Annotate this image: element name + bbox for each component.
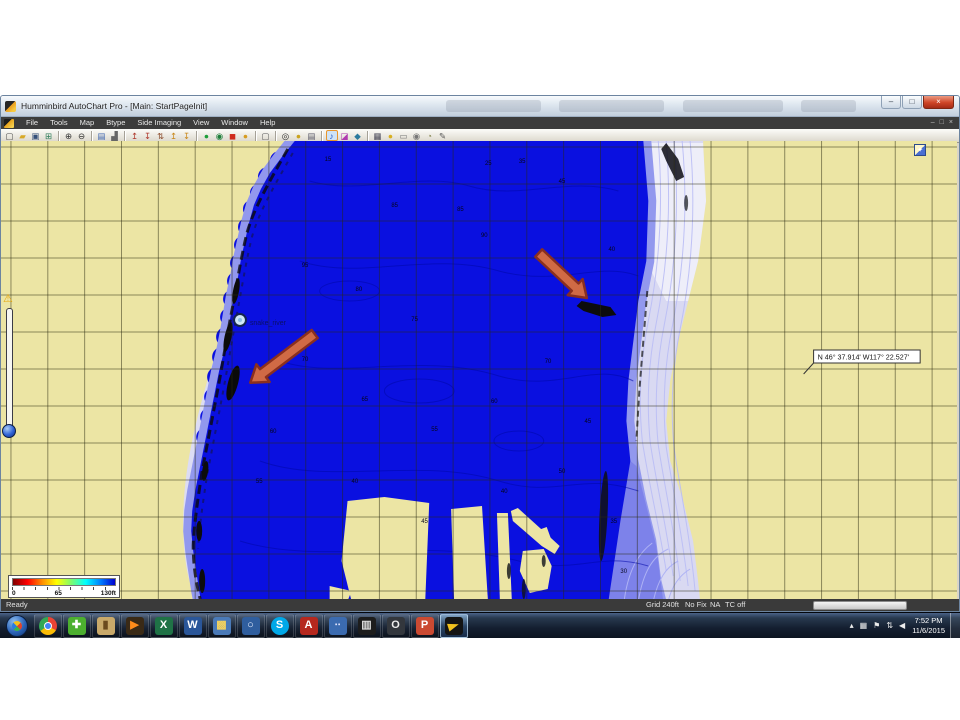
status-satellites: NA: [710, 601, 720, 609]
excel-icon-glyph: X: [155, 617, 173, 635]
app-logo-icon: [5, 101, 16, 112]
title-bar[interactable]: Humminbird AutoChart Pro - [Main: StartP…: [1, 96, 959, 117]
minimize-button[interactable]: –: [881, 96, 901, 109]
search-map-icon-glyph: ○: [242, 617, 260, 635]
legend-mid: 65: [55, 590, 62, 597]
window-title: Humminbird AutoChart Pro - [Main: StartP…: [21, 101, 207, 111]
depth-label: 45: [585, 419, 592, 425]
map-viewport[interactable]: 1525354585859040958075707065604560555540…: [1, 141, 957, 601]
ghost-window: [446, 100, 541, 112]
taskbar-green-app-icon[interactable]: ✚: [63, 614, 91, 638]
taskbar-apps: ✚▮▶XW▩○SA∙∙▥OP: [33, 614, 468, 638]
toolbar-separator: [367, 131, 368, 141]
maximize-button[interactable]: □: [902, 96, 922, 109]
gps-icon[interactable]: ●: [293, 130, 305, 141]
skype-icon-glyph: S: [271, 617, 289, 635]
mdi-minimize-icon[interactable]: –: [931, 117, 935, 129]
depth-notes-icon[interactable]: ♪: [326, 130, 338, 141]
menu-window[interactable]: Window: [215, 117, 254, 129]
north-indicator-icon[interactable]: ✦: [914, 144, 926, 156]
clock-time: 7:52 PM: [912, 616, 945, 625]
autochart-window: Humminbird AutoChart Pro - [Main: StartP…: [0, 95, 960, 612]
save-icon[interactable]: ▣: [30, 130, 42, 141]
toolbar-separator: [91, 131, 92, 141]
mdi-restore-icon[interactable]: □: [940, 117, 944, 129]
status-grid-scale: Grid 240ft: [646, 601, 679, 609]
menu-items: FileToolsMapBtypeSide ImagingViewWindowH…: [20, 117, 281, 129]
clock-icon[interactable]: ◔: [424, 130, 436, 141]
toolbar-separator: [321, 131, 322, 141]
lock-icon[interactable]: ●: [385, 130, 397, 141]
taskbar-search-map-icon[interactable]: ○: [237, 614, 265, 638]
window-controls: –□×: [880, 96, 954, 109]
system-tray: ▴▦⚑⇅◀ 7:52 PM 11/6/2015: [847, 613, 960, 639]
depth-label: 55: [256, 479, 263, 485]
map-canvas[interactable]: 1525354585859040958075707065604560555540…: [1, 141, 957, 601]
depth-label: 45: [421, 519, 428, 525]
tray-flag-icon[interactable]: ⚑: [873, 621, 880, 630]
mdi-window-controls: –□×: [931, 117, 953, 129]
ghost-window: [683, 100, 783, 112]
depth-label: 45: [559, 179, 566, 185]
depth-label: 60: [270, 429, 277, 435]
tray-icons: ▴▦⚑⇅◀: [847, 621, 909, 630]
toolbar-separator: [196, 131, 197, 141]
toolbar-separator: [124, 131, 125, 141]
taskbar-people-app-icon[interactable]: ∙∙: [324, 614, 352, 638]
photos-icon-glyph: ▩: [213, 617, 231, 635]
menu-map[interactable]: Map: [74, 117, 101, 129]
powerpoint-icon-glyph: P: [416, 617, 434, 635]
depth-label: 35: [519, 159, 526, 165]
toolbar-separator: [58, 131, 59, 141]
depth-label: 40: [352, 479, 359, 485]
close-button[interactable]: ×: [923, 96, 954, 109]
depth-label: 40: [608, 247, 615, 253]
toolbar-separator: [275, 131, 276, 141]
taskbar-autochart-icon[interactable]: [440, 614, 468, 638]
taskbar-skype-icon[interactable]: S: [266, 614, 294, 638]
ring-app-icon-glyph: O: [387, 617, 405, 635]
import-sonar-icon[interactable]: ↥: [129, 130, 141, 141]
target-icon[interactable]: ◎: [280, 130, 292, 141]
new-file-icon[interactable]: ▢: [4, 130, 16, 141]
import-track-icon[interactable]: ↥: [168, 130, 180, 141]
word-icon-glyph: W: [184, 617, 202, 635]
print-icon[interactable]: ▤: [306, 130, 318, 141]
windows-taskbar: ✚▮▶XW▩○SA∙∙▥OP ▴▦⚑⇅◀ 7:52 PM 11/6/2015: [0, 612, 960, 638]
depth-label: 70: [545, 359, 552, 365]
taskbar-adobe-reader-icon[interactable]: A: [295, 614, 323, 638]
tray-hidden-icons[interactable]: ▴: [850, 621, 854, 630]
zoom-out-icon[interactable]: ⊖: [76, 130, 88, 141]
zoom-slider-handle[interactable]: [2, 424, 16, 438]
live-mode-icon[interactable]: ◉: [214, 130, 226, 141]
movie-app-icon-glyph: ▥: [358, 617, 376, 635]
depth-label: 60: [491, 399, 498, 405]
depth-label: 85: [391, 203, 398, 209]
clock-date: 11/6/2015: [912, 626, 945, 635]
menu-help[interactable]: Help: [254, 117, 281, 129]
toolbar-separator: [255, 131, 256, 141]
export-sonar-icon[interactable]: ↧: [142, 130, 154, 141]
measure-icon[interactable]: ◆: [352, 130, 364, 141]
chrome-icon-glyph: [39, 617, 57, 635]
taskbar-chrome-icon[interactable]: [34, 614, 62, 638]
windows-flag-icon: [10, 618, 24, 632]
tray-action-center-icon[interactable]: ▦: [860, 621, 868, 630]
status-progress-bar: [813, 601, 907, 610]
media-app-icon-glyph: ▶: [126, 617, 144, 635]
taskbar-statue-app-icon[interactable]: ▮: [92, 614, 120, 638]
report-icon[interactable]: ▢: [260, 130, 272, 141]
open-folder-icon[interactable]: ▰: [17, 130, 29, 141]
legend-max: 130ft: [101, 590, 116, 597]
depth-legend: 0 65 130ft: [8, 575, 120, 598]
depth-label: 95: [302, 263, 309, 269]
menu-view[interactable]: View: [187, 117, 215, 129]
green-app-icon-glyph: ✚: [68, 617, 86, 635]
taskbar-powerpoint-icon[interactable]: P: [411, 614, 439, 638]
depth-label: 35: [610, 519, 617, 525]
autochart-icon-glyph: [445, 617, 463, 635]
windows-desktop: Humminbird AutoChart Pro - [Main: StartP…: [0, 95, 960, 638]
menu-btype[interactable]: Btype: [100, 117, 131, 129]
statue-app-icon-glyph: ▮: [97, 617, 115, 635]
palette-icon[interactable]: ◪: [339, 130, 351, 141]
tray-volume-icon[interactable]: ◀: [899, 621, 905, 630]
waypoint-label: snake_river: [250, 320, 287, 327]
chart-icon[interactable]: ▟: [109, 130, 121, 141]
depth-label: 50: [559, 469, 566, 475]
mail-icon[interactable]: ▭: [398, 130, 410, 141]
taskbar-excel-icon[interactable]: X: [150, 614, 178, 638]
depth-label: 85: [457, 207, 464, 213]
depth-gradient-bar: [12, 578, 116, 586]
camera-icon[interactable]: ◉: [411, 130, 423, 141]
edit-icon[interactable]: ✎: [437, 130, 449, 141]
status-gps-fix: No Fix: [685, 601, 707, 609]
depth-label: 65: [361, 397, 368, 403]
zoom-in-icon[interactable]: ⊕: [63, 130, 75, 141]
depth-label: 40: [501, 489, 508, 495]
tray-network-icon[interactable]: ⇅: [886, 621, 893, 630]
ghost-window: [559, 100, 664, 112]
depth-label: 30: [620, 569, 627, 575]
export-track-icon[interactable]: ↧: [181, 130, 193, 141]
warning-icon: ⚠: [3, 293, 13, 305]
grid-icon[interactable]: ▦: [372, 130, 384, 141]
mdi-close-icon[interactable]: ×: [949, 117, 953, 129]
status-ready: Ready: [6, 601, 28, 609]
taskbar-movie-app-icon[interactable]: ▥: [353, 614, 381, 638]
menu-file[interactable]: File: [20, 117, 44, 129]
save-all-icon[interactable]: ⊞: [43, 130, 55, 141]
slide-canvas: Humminbird AutoChart Pro - [Main: StartP…: [0, 0, 960, 720]
taskbar-ring-app-icon[interactable]: O: [382, 614, 410, 638]
taskbar-clock[interactable]: 7:52 PM 11/6/2015: [912, 616, 945, 635]
depth-label: 70: [302, 357, 309, 363]
pause-icon[interactable]: ●: [240, 130, 252, 141]
record-icon[interactable]: ◼: [227, 130, 239, 141]
legend-min: 0: [12, 590, 16, 597]
menu-bar: FileToolsMapBtypeSide ImagingViewWindowH…: [1, 117, 959, 129]
depth-label: 25: [485, 161, 492, 167]
coordinate-label: N 46° 37.914' W117° 22.527': [818, 353, 910, 361]
display-icon[interactable]: ▤: [96, 130, 108, 141]
taskbar-photos-icon[interactable]: ▩: [208, 614, 236, 638]
start-button[interactable]: [6, 615, 28, 637]
status-tide-correction: TC off: [725, 601, 745, 609]
status-bar: Ready Grid 240ft No Fix NA TC off: [1, 599, 959, 611]
taskbar-media-app-icon[interactable]: ▶: [121, 614, 149, 638]
depth-label: 55: [431, 427, 438, 433]
show-desktop-button[interactable]: [950, 613, 960, 639]
start-recording-icon[interactable]: ●: [201, 130, 213, 141]
menu-tools[interactable]: Tools: [44, 117, 74, 129]
menu-side-imaging[interactable]: Side Imaging: [131, 117, 187, 129]
waypoint-marker[interactable]: [234, 314, 246, 326]
adobe-reader-icon-glyph: A: [300, 617, 318, 635]
depth-label: 80: [356, 287, 363, 293]
taskbar-word-icon[interactable]: W: [179, 614, 207, 638]
ghost-window: [801, 100, 856, 112]
sync-tracks-icon[interactable]: ⇅: [155, 130, 167, 141]
depth-label: 15: [325, 157, 332, 163]
zoom-slider-track[interactable]: [6, 308, 13, 430]
depth-label: 90: [481, 233, 488, 239]
people-app-icon-glyph: ∙∙: [329, 617, 347, 635]
mdi-child-icon: [4, 119, 14, 128]
depth-label: 75: [411, 317, 418, 323]
